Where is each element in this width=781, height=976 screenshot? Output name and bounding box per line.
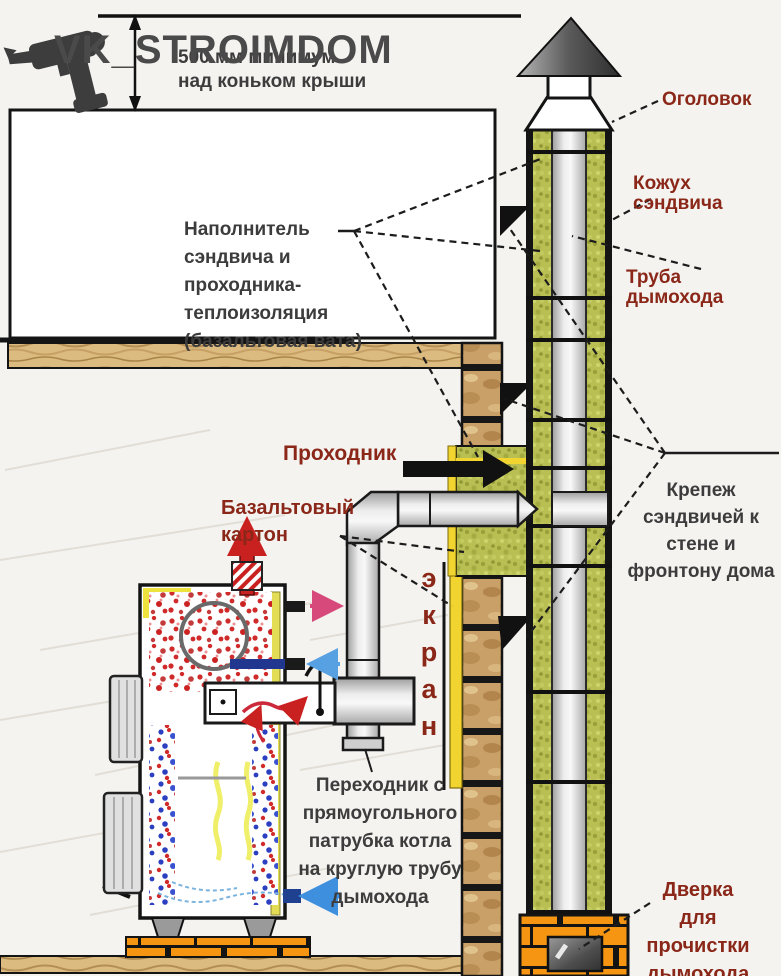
label-fasteners: Крепеж сэндвичей к стене и фронтону дома bbox=[622, 477, 780, 585]
label-flue-pipe: Труба дымохода bbox=[626, 268, 781, 308]
label-pass-through: Проходник bbox=[283, 443, 396, 465]
wooden-floor bbox=[0, 956, 466, 973]
basalt-cardboard-strip bbox=[450, 564, 462, 788]
chimney-installation-diagram: VK_STROIMDOM 500 мм минимум над коньком … bbox=[0, 0, 781, 976]
label-screen-vertical: э к р а н bbox=[414, 560, 444, 745]
ridge-clearance-line2: над коньком крыши bbox=[178, 70, 366, 94]
boiler-leg bbox=[244, 918, 276, 937]
boiler-leg bbox=[152, 918, 184, 937]
tee-branch bbox=[552, 492, 608, 526]
sandwich-chimney bbox=[518, 18, 620, 918]
chimney-neck bbox=[548, 74, 590, 98]
label-sandwich-casing: Кожух сэндвича bbox=[633, 174, 781, 214]
rect-to-round-adapter bbox=[334, 678, 414, 724]
insulation-left bbox=[532, 128, 552, 918]
chimney-pedestal bbox=[520, 915, 628, 976]
watermark-brand: VK_STROIMDOM bbox=[54, 28, 393, 73]
boiler-brick-pad bbox=[126, 937, 310, 957]
label-cap: Оголовок bbox=[662, 90, 752, 110]
cleanout-door bbox=[548, 937, 602, 971]
label-cleanout-door: Дверка для прочистки дымохода bbox=[638, 876, 758, 976]
horizontal-pipe bbox=[398, 492, 518, 526]
label-insulation-filler: Наполнитель сэндвича и проходника- тепло… bbox=[184, 216, 362, 356]
water-jacket bbox=[149, 592, 272, 692]
pipe-end-cap bbox=[343, 738, 383, 750]
label-basalt-cardboard: Базальтовый картон bbox=[221, 495, 354, 549]
label-adapter: Переходник с прямоугольного патрубка кот… bbox=[280, 772, 480, 912]
